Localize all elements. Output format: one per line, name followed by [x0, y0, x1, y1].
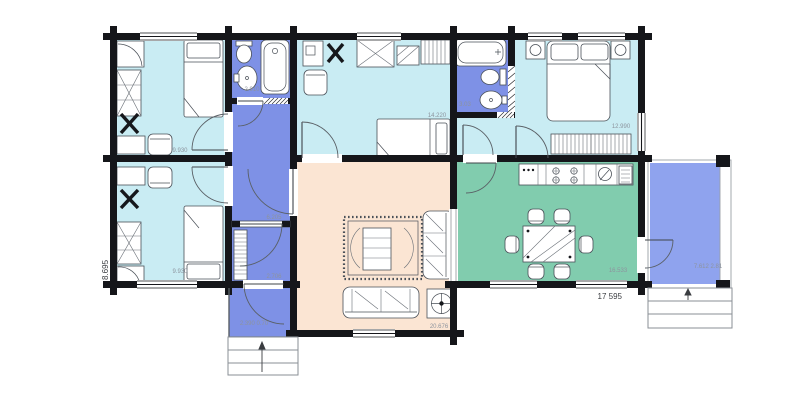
toilet-icon — [237, 45, 252, 63]
sink-tap-icon — [234, 74, 239, 82]
office-chair-icon — [304, 70, 327, 95]
window — [357, 32, 401, 41]
closet-shelves-icon — [234, 230, 247, 280]
desk-icon — [117, 167, 145, 185]
area-label-hallway: 6.205 — [266, 215, 282, 221]
fridge-icon — [619, 166, 632, 184]
room-entry-hall — [229, 285, 293, 337]
area-label-entry: 2.390 0.70 — [240, 321, 269, 327]
lamp-icon — [615, 45, 626, 56]
area-label-closet: 2.706 — [266, 274, 282, 280]
toilet-tank-icon — [500, 69, 506, 85]
window — [578, 32, 625, 41]
pillow-icon — [551, 44, 578, 60]
area-label-bathroom-left: 2.910 — [244, 87, 260, 93]
window — [490, 280, 537, 289]
entry-steps — [228, 337, 298, 375]
area-label-living: 20.676 — [430, 324, 449, 330]
window — [576, 280, 627, 289]
floor-plan-page: 9.930 9.930 2.910 6.205 2.706 2.390 0.70… — [0, 0, 800, 400]
bathroom-left-fixtures — [234, 40, 289, 94]
area-label-bathroom-right: 3.03 — [459, 102, 471, 108]
window — [528, 32, 562, 41]
coffee-table-icon — [363, 228, 391, 270]
sink-icon — [480, 91, 502, 109]
overall-width-dimension: 17 595 — [598, 292, 623, 301]
area-label-bedroom-bottom-left: 9.930 — [172, 269, 188, 275]
dining-table-icon — [523, 226, 575, 262]
corner-cupboard-icon — [117, 41, 144, 67]
window — [140, 32, 197, 41]
kitchen-sink-icon — [599, 168, 612, 181]
area-label-bedroom-middle: 14.220 — [428, 113, 447, 119]
closet-shelves-icon — [421, 40, 450, 64]
lamp-icon — [530, 45, 541, 56]
pillow-icon — [187, 264, 220, 279]
toilet-icon — [481, 70, 499, 85]
cased-opening — [449, 209, 458, 281]
area-label-bedroom-top-left: 9.930 — [172, 148, 188, 154]
desk-icon — [117, 136, 145, 154]
floor-plan-svg: 9.930 9.930 2.910 6.205 2.706 2.390 0.70… — [0, 0, 800, 400]
pillow-icon — [581, 44, 608, 60]
kitchen-counter-icon — [519, 164, 633, 185]
window — [637, 113, 646, 151]
closet-furniture — [234, 230, 247, 280]
area-label-master: 12.990 — [612, 124, 631, 130]
overall-height-dimension: 8.695 — [101, 259, 110, 280]
area-label-terrace: 7.612 2.81 — [694, 264, 723, 270]
room-hallway — [229, 100, 293, 224]
terrace-steps — [648, 288, 732, 328]
window — [137, 280, 197, 289]
pillow-icon — [187, 43, 220, 58]
window — [353, 329, 395, 338]
pillow-icon — [436, 123, 447, 154]
terrace-post-top — [716, 155, 730, 167]
sink-tap-icon — [502, 96, 507, 104]
office-chair-icon — [148, 134, 172, 155]
office-chair-icon — [148, 167, 172, 188]
room-master-vestibule — [452, 116, 514, 160]
area-label-dining: 16.533 — [609, 268, 628, 274]
